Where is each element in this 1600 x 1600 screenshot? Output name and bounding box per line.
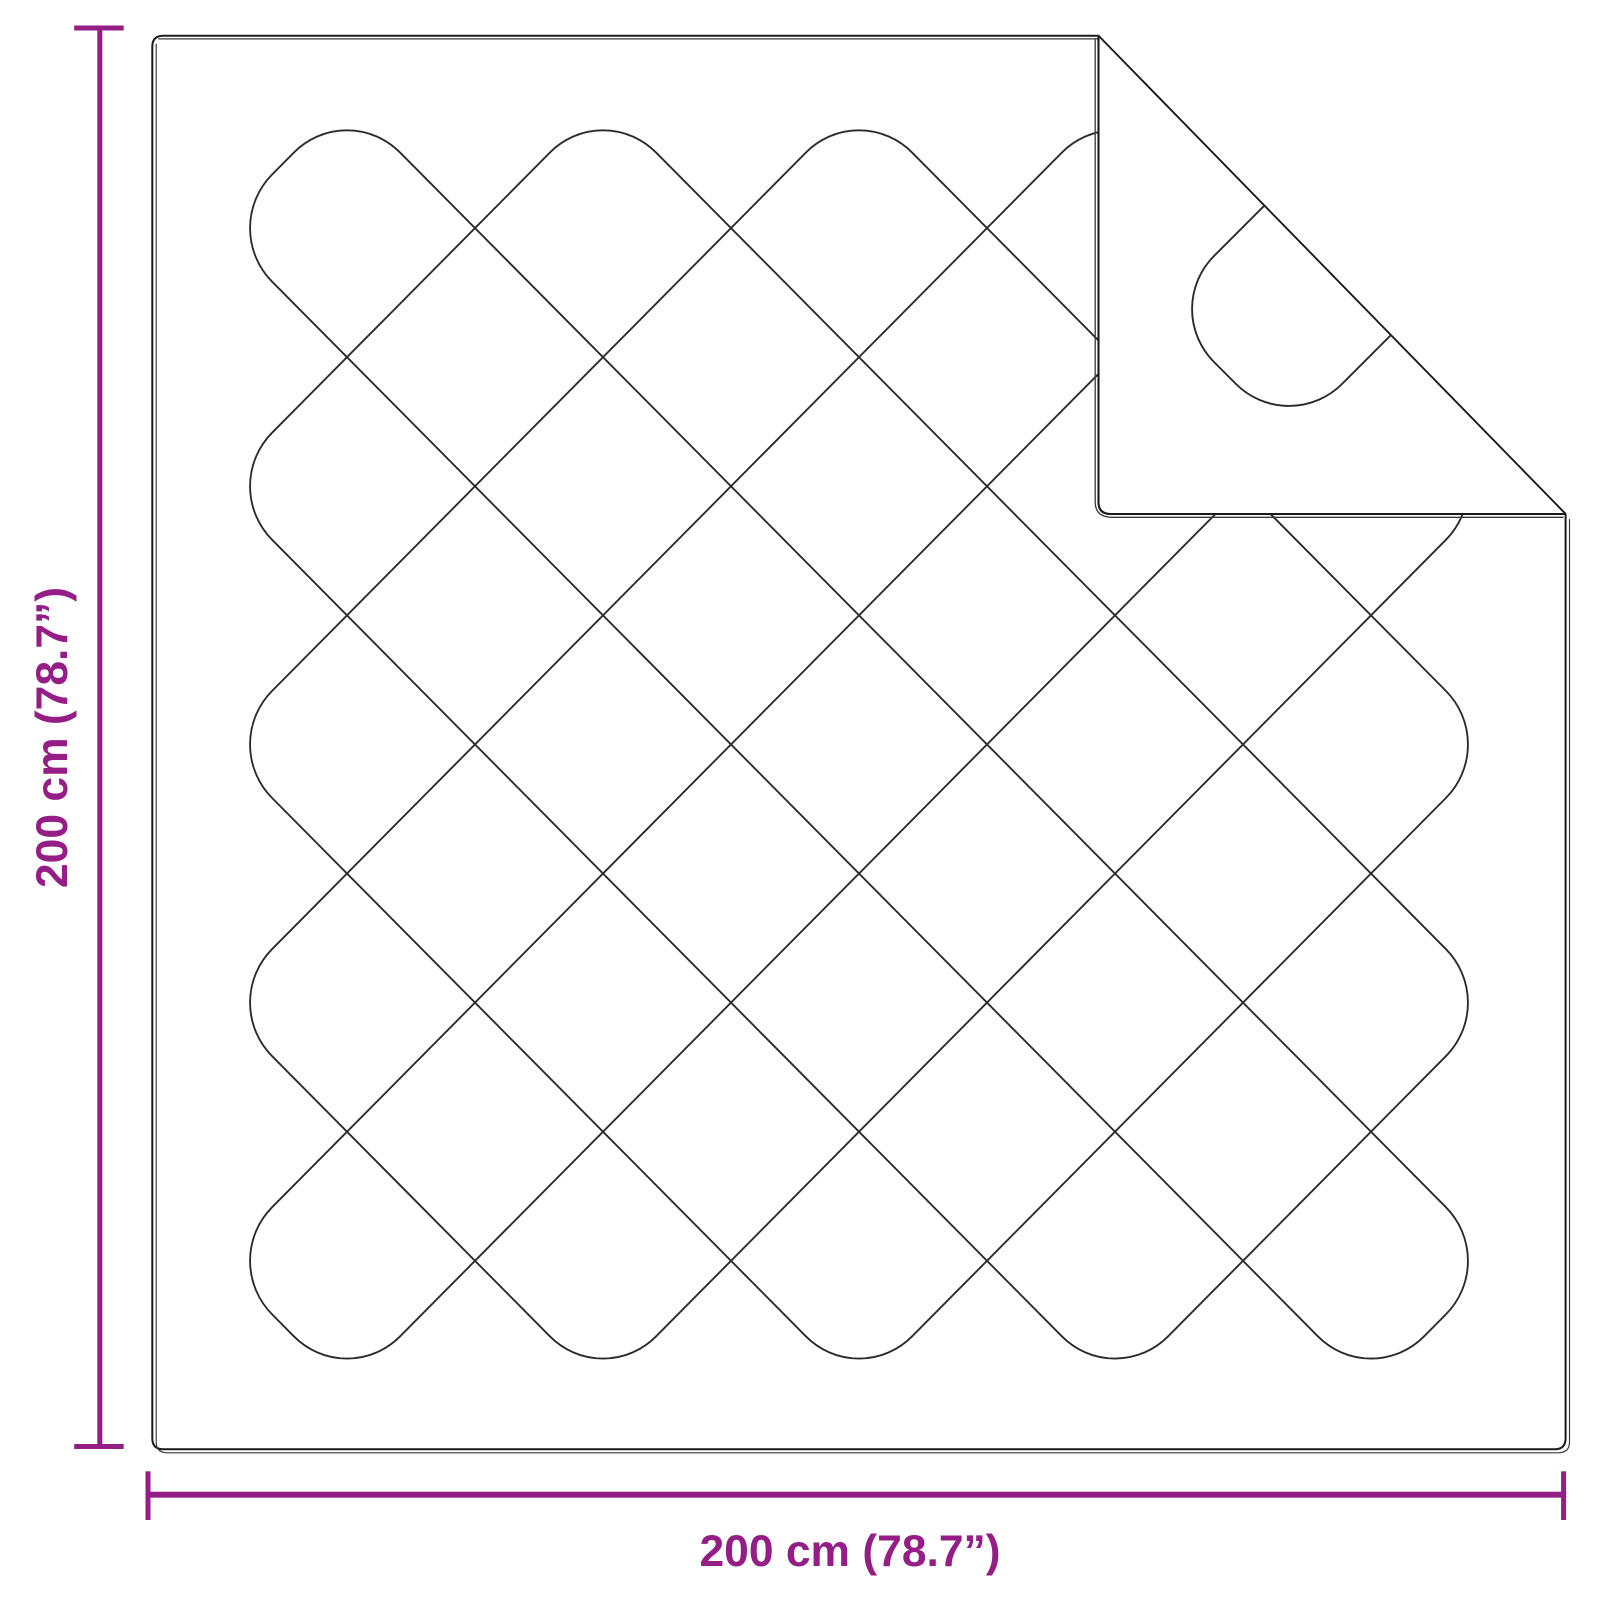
svg-text:200 cm (78.7”): 200 cm (78.7”) [28, 587, 77, 888]
svg-text:200 cm (78.7”): 200 cm (78.7”) [699, 1527, 1000, 1576]
